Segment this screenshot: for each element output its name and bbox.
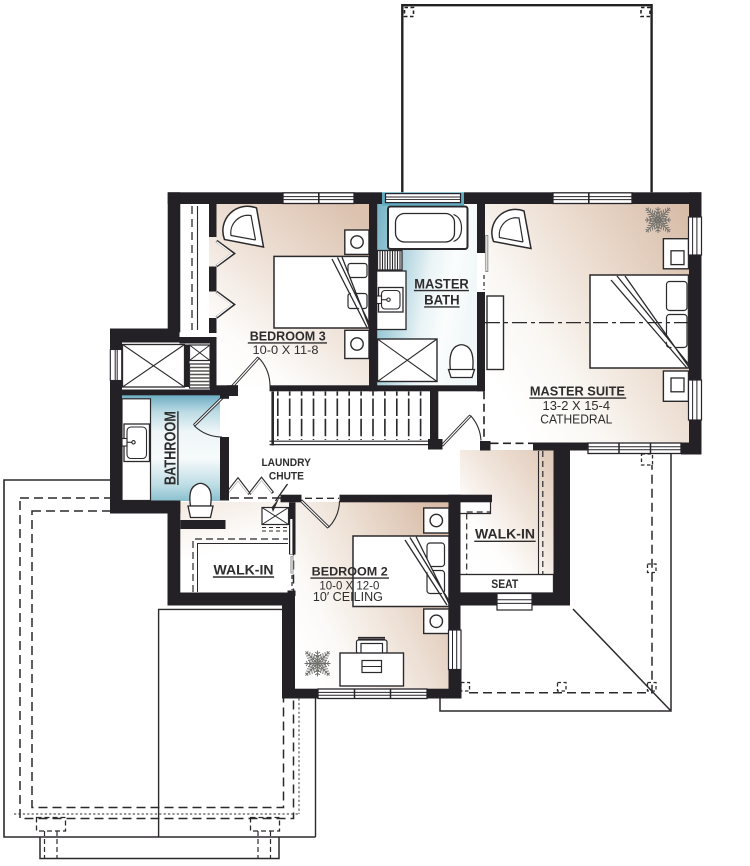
svg-text:BATH: BATH — [424, 293, 460, 308]
svg-text:BEDROOM 2: BEDROOM 2 — [312, 565, 388, 579]
svg-text:10-0 X 11-8: 10-0 X 11-8 — [253, 343, 319, 357]
svg-text:BEDROOM 3: BEDROOM 3 — [250, 328, 326, 343]
svg-text:BATHROOM: BATHROOM — [163, 411, 180, 485]
svg-text:WALK-IN: WALK-IN — [214, 562, 274, 578]
svg-text:MASTER: MASTER — [414, 276, 469, 291]
svg-text:WALK-IN: WALK-IN — [475, 526, 535, 542]
svg-text:CHUTE: CHUTE — [269, 471, 304, 483]
svg-text:SEAT: SEAT — [491, 577, 519, 591]
svg-text:CATHEDRAL: CATHEDRAL — [540, 412, 612, 427]
svg-text:MASTER SUITE: MASTER SUITE — [530, 384, 625, 399]
svg-text:10′ CEILING: 10′ CEILING — [313, 590, 383, 604]
svg-text:LAUNDRY: LAUNDRY — [261, 457, 311, 469]
